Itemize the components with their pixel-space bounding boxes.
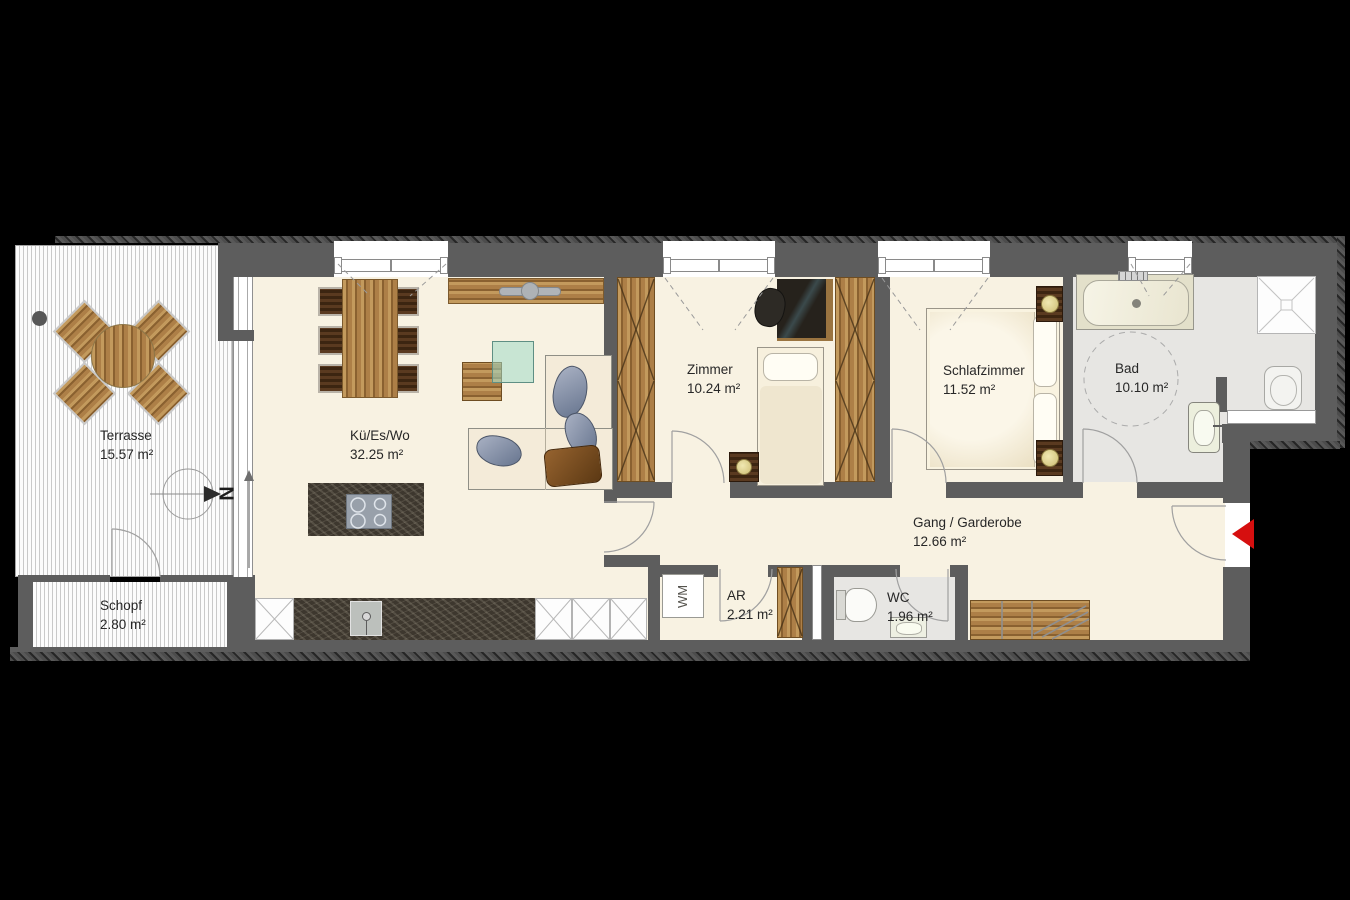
- wall-hall: [617, 482, 672, 498]
- bed-pillow: [763, 353, 818, 381]
- kitchen-tall-cabinet: [535, 598, 572, 640]
- room-area: 2.21 m²: [727, 605, 773, 624]
- washing-machine-label: WM: [675, 584, 690, 607]
- dining-chair: [318, 364, 345, 393]
- room-label-zimmer: Zimmer 10.24 m²: [687, 360, 740, 398]
- room-label-ar: AR 2.21 m²: [727, 586, 773, 624]
- window-kitchen: [334, 241, 448, 277]
- kitchen-cabinet: [255, 598, 294, 640]
- toilet-bowl: [1270, 375, 1297, 406]
- room-name: Zimmer: [687, 360, 740, 379]
- room-name: AR: [727, 586, 773, 605]
- window-schlafzimmer: [878, 241, 990, 277]
- wall-hall: [946, 482, 1083, 498]
- room-label-schopf: Schopf 2.80 m²: [100, 596, 146, 634]
- room-area: 1.96 m²: [887, 607, 933, 626]
- room-area: 11.52 m²: [943, 380, 1025, 399]
- room-label-schlafzimmer: Schlafzimmer 11.52 m²: [943, 361, 1025, 399]
- room-name: Bad: [1115, 359, 1168, 378]
- wall-zimmer-schlafzimmer: [875, 277, 890, 498]
- washing-machine: WM: [662, 574, 704, 618]
- wall-texture-bottom: [10, 652, 1250, 661]
- schopf-wall-right: [227, 575, 255, 650]
- wall-schlafzimmer-bad: [1063, 277, 1073, 482]
- kitchen-tall-cabinet: [572, 598, 610, 640]
- room-name: Gang / Garderobe: [913, 513, 1022, 532]
- room-name: Schlafzimmer: [943, 361, 1025, 380]
- kitchen-tall-cabinet: [610, 598, 647, 640]
- bathtub-faucet-panel: [1118, 271, 1148, 281]
- terrace-drain-dot: [32, 311, 47, 326]
- sofa-blanket: [543, 444, 603, 488]
- nightstand-lamp: [1041, 295, 1059, 313]
- nightstand-lamp: [736, 459, 752, 475]
- wall-wc-left: [822, 565, 834, 640]
- window-jamb: [878, 257, 886, 274]
- terrace-glass-wall: [233, 277, 253, 577]
- schopf-wall-top: [160, 575, 230, 582]
- room-area: 2.80 m²: [100, 615, 146, 634]
- window-mullion: [390, 259, 392, 272]
- faucet-icon: [362, 612, 371, 621]
- faucet-stem: [366, 621, 367, 635]
- dining-chair: [318, 287, 345, 316]
- toilet-wc-bowl: [845, 588, 877, 622]
- room-name: Kü/Es/Wo: [350, 426, 410, 445]
- floorplan-canvas: WM: [0, 0, 1350, 900]
- wall-top: [990, 240, 1128, 277]
- sideboard: [448, 278, 604, 304]
- wall-texture-bump: [1250, 441, 1340, 449]
- shaft: [812, 565, 822, 640]
- basin-bowl: [1193, 410, 1215, 446]
- bathtub: [1076, 274, 1194, 330]
- wall-wc-right: [955, 565, 968, 640]
- wall-right-entry-upper: [1223, 430, 1250, 503]
- coat-rack-wardrobe: [970, 600, 1090, 640]
- schopf-wall-top: [18, 575, 110, 582]
- room-label-wc: WC 1.96 m²: [887, 588, 933, 626]
- window-jamb: [334, 257, 342, 274]
- wall-left-upper: [218, 240, 233, 341]
- room-area: 10.10 m²: [1115, 378, 1168, 397]
- wall-wc-top: [834, 565, 900, 577]
- wall-top: [218, 240, 334, 277]
- north-letter: N: [215, 486, 237, 500]
- dining-table: [342, 279, 398, 398]
- room-label-gang: Gang / Garderobe 12.66 m²: [913, 513, 1022, 551]
- window-jamb: [440, 257, 448, 274]
- desk: [777, 279, 833, 341]
- wall-hall: [1137, 482, 1223, 498]
- glass-pane-line: [247, 277, 248, 577]
- wall-texture-right: [1337, 236, 1345, 448]
- terrace-deck: [15, 245, 233, 577]
- window-zimmer: [663, 241, 775, 277]
- basin-tap: [1213, 425, 1223, 427]
- room-label-kue-es-wo: Kü/Es/Wo 32.25 m²: [350, 426, 410, 464]
- dining-chair: [318, 326, 345, 355]
- room-label-terrasse: Terrasse 15.57 m²: [100, 426, 153, 464]
- cooktop: [346, 494, 392, 529]
- window-jamb: [663, 257, 671, 274]
- room-name: Schopf: [100, 596, 146, 615]
- entry-arrow-icon: [1232, 519, 1254, 549]
- window-jamb: [982, 257, 990, 274]
- sideboard-knob: [521, 282, 539, 300]
- wall-top: [775, 240, 878, 277]
- window-mullion: [933, 259, 935, 272]
- kitchen-sink: [350, 601, 382, 636]
- bed-pillow: [1033, 315, 1057, 387]
- single-bed: [757, 347, 824, 486]
- bad-niche: [1227, 410, 1316, 424]
- wall-right-entry-lower: [1223, 567, 1250, 650]
- zimmer-wardrobe-right: [835, 277, 875, 482]
- kitchen-counter: [294, 598, 535, 640]
- room-area: 10.24 m²: [687, 379, 740, 398]
- wall-right-bad: [1315, 240, 1337, 443]
- room-area: 32.25 m²: [350, 445, 410, 464]
- window-jamb: [767, 257, 775, 274]
- room-name: Terrasse: [100, 426, 153, 445]
- north-label: N: [214, 486, 237, 500]
- glass-mullion: [233, 330, 254, 341]
- bathtub-drain: [1132, 299, 1141, 308]
- glass-pane-line: [238, 277, 239, 577]
- shower: [1257, 276, 1316, 334]
- window-jamb: [1184, 257, 1192, 274]
- ar-cabinet: [777, 567, 803, 638]
- wall-ar-right: [802, 565, 812, 640]
- terrace-table: [91, 324, 155, 388]
- toilet-bad: [1264, 366, 1302, 410]
- nightstand-lamp: [1041, 449, 1059, 467]
- room-name: WC: [887, 588, 933, 607]
- room-area: 15.57 m²: [100, 445, 153, 464]
- washbasin-bad: [1188, 402, 1220, 453]
- zimmer-wardrobe-left: [617, 277, 655, 482]
- window-mullion: [718, 259, 720, 272]
- coffee-table-glass: [492, 341, 534, 383]
- room-area: 12.66 m²: [913, 532, 1022, 551]
- schopf-wall-left: [18, 575, 33, 650]
- bed-duvet: [760, 386, 822, 484]
- wall-top: [448, 240, 663, 277]
- room-label-bad: Bad 10.10 m²: [1115, 359, 1168, 397]
